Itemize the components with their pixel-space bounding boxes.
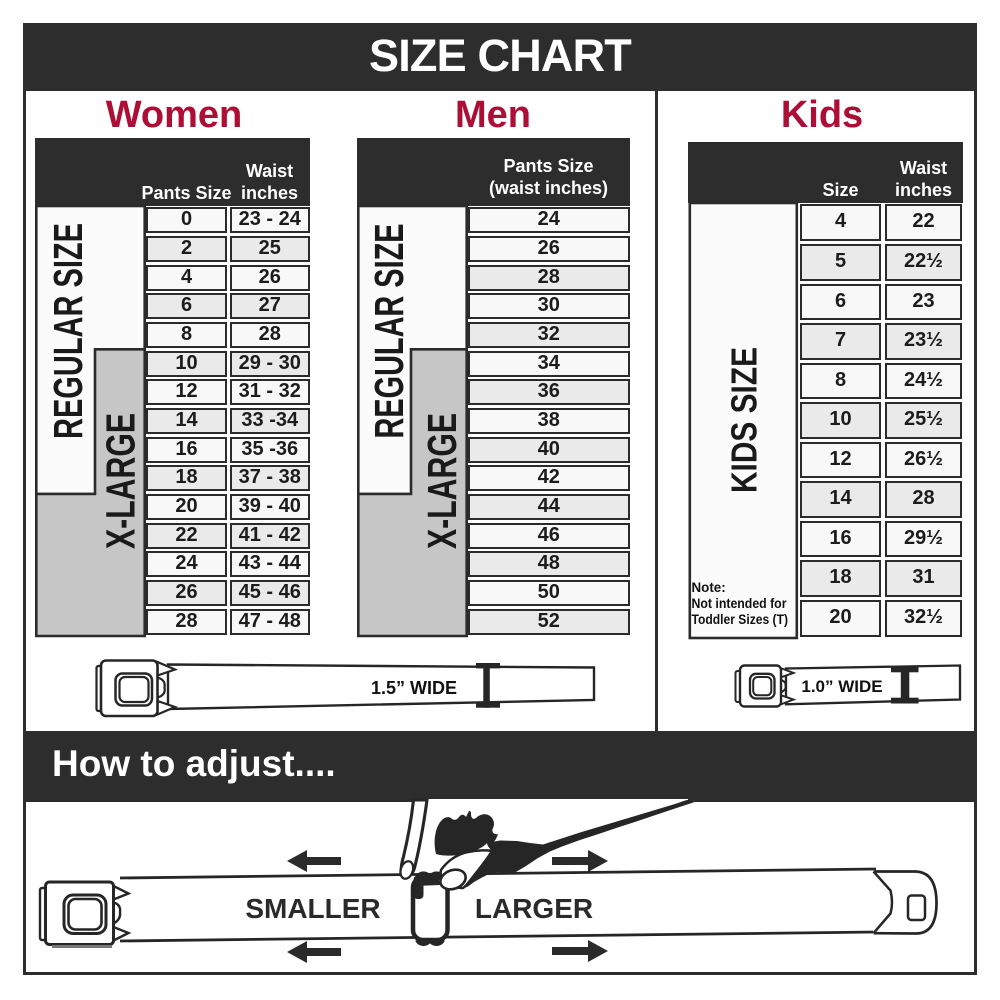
svg-text:SMALLER: SMALLER bbox=[245, 893, 380, 924]
svg-text:Note:: Note: bbox=[692, 580, 726, 595]
svg-text:X-LARGE: X-LARGE bbox=[419, 413, 465, 549]
svg-text:1.5” WIDE: 1.5” WIDE bbox=[371, 678, 457, 698]
svg-text:REGULAR SIZE: REGULAR SIZE bbox=[366, 224, 412, 439]
svg-text:LARGER: LARGER bbox=[475, 893, 593, 924]
svg-text:REGULAR SIZE: REGULAR SIZE bbox=[45, 223, 91, 439]
svg-text:Not intended for: Not intended for bbox=[692, 596, 788, 611]
svg-text:1.0” WIDE: 1.0” WIDE bbox=[801, 677, 882, 696]
svg-text:Toddler Sizes (T): Toddler Sizes (T) bbox=[692, 612, 789, 627]
svg-text:X-LARGE: X-LARGE bbox=[98, 413, 144, 549]
svg-text:KIDS SIZE: KIDS SIZE bbox=[724, 347, 765, 493]
